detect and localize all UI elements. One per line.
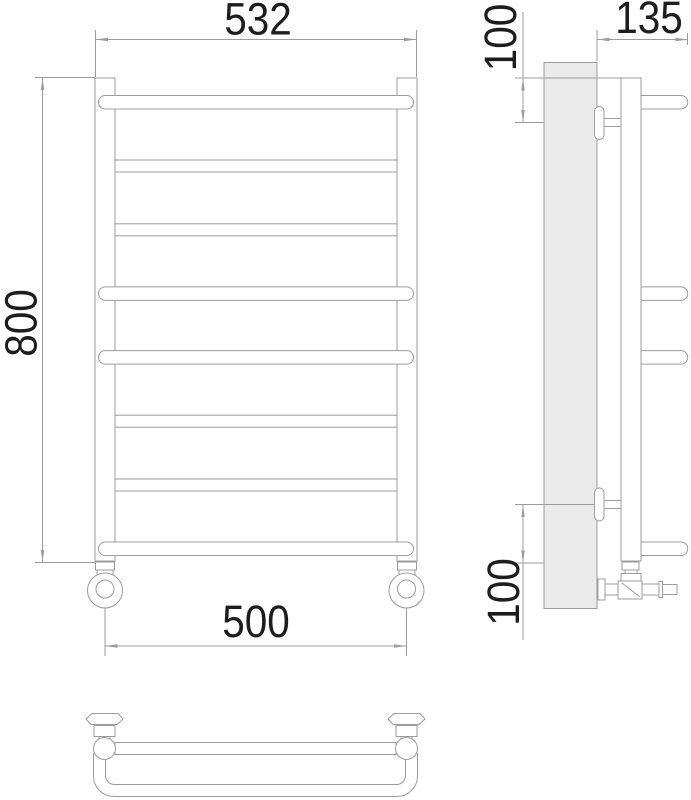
dimension-label-135: 135	[615, 0, 683, 44]
dimension-label-100-top: 100	[476, 4, 526, 72]
bracket-plate	[595, 488, 605, 521]
left-valve	[88, 562, 123, 608]
valve-nut	[398, 562, 417, 570]
rung-straight-2	[115, 160, 397, 172]
valve-inner	[96, 580, 114, 598]
dimension-label-100-bottom: 100	[479, 558, 529, 626]
rung-curved-1	[99, 95, 414, 109]
plan-curved-tube-outer	[94, 753, 418, 797]
dimension-overall-width: 532	[96, 0, 417, 77]
arrowhead	[41, 550, 44, 563]
side-valve-assembly	[598, 562, 677, 600]
side-pipe-1	[641, 95, 688, 109]
outlet-flange	[659, 582, 663, 598]
wall-panel	[544, 63, 597, 609]
mounting-bracket-bottom	[595, 488, 622, 521]
wall-escutcheon	[598, 579, 605, 600]
rung-curved-8	[99, 542, 414, 556]
side-view	[544, 63, 688, 609]
arrowhead	[105, 644, 118, 647]
fitting-neck	[625, 570, 637, 574]
rung-curved-4	[99, 287, 414, 301]
plan-view	[86, 714, 425, 797]
plan-nut	[396, 726, 417, 737]
front-right-rail	[397, 78, 417, 561]
front-view	[88, 78, 425, 608]
valve-nut	[96, 562, 115, 570]
dimension-label-800: 800	[0, 289, 47, 357]
side-pipe-5	[641, 351, 688, 365]
rung-straight-7	[115, 479, 397, 491]
supply-stem	[605, 584, 618, 595]
outlet-pipe	[663, 585, 678, 595]
rung-curved-5	[99, 351, 414, 365]
bracket-plate	[595, 107, 605, 140]
side-rail	[621, 78, 641, 561]
arrowhead	[521, 505, 524, 518]
rung-straight-6	[115, 415, 397, 427]
plan-right-rail-section	[396, 738, 418, 760]
plan-curved-tube-inner	[106, 755, 406, 785]
dimension-label-532: 532	[224, 0, 292, 45]
dimension-label-500: 500	[222, 597, 290, 647]
dimension-overall-height: 800	[0, 78, 95, 563]
mounting-bracket-top	[595, 107, 622, 140]
rung-straight-3	[115, 224, 397, 236]
side-pipes	[641, 95, 688, 555]
arrowhead	[96, 38, 109, 41]
plan-nut	[94, 726, 115, 737]
side-pipe-4	[641, 287, 688, 301]
side-pipe-8	[641, 542, 688, 556]
bracket-stem	[604, 501, 621, 509]
arrowhead	[521, 110, 524, 123]
plan-wall-plate	[388, 714, 425, 725]
fitting-nut	[622, 562, 639, 570]
arrowhead	[404, 38, 417, 41]
valve-outlet	[642, 584, 659, 595]
dimension-connection-spacing: 500	[105, 597, 407, 656]
plan-straight-tube	[115, 743, 396, 755]
front-left-rail	[95, 78, 115, 561]
technical-drawing: 532 800 500 135 100	[0, 0, 691, 800]
fitting-nut	[621, 574, 641, 582]
arrowhead	[521, 78, 524, 91]
dimension-depth: 135	[597, 0, 688, 61]
valve-inner	[398, 580, 416, 598]
arrowhead	[597, 38, 610, 41]
plan-wall-plate	[86, 714, 123, 725]
front-rungs	[99, 95, 414, 555]
technical-drawing-canvas: 532 800 500 135 100	[0, 0, 691, 800]
plan-left-rail-section	[94, 738, 116, 760]
arrowhead	[41, 78, 44, 91]
right-valve	[389, 562, 424, 608]
arrowhead	[394, 644, 407, 647]
bracket-stem	[604, 119, 621, 127]
